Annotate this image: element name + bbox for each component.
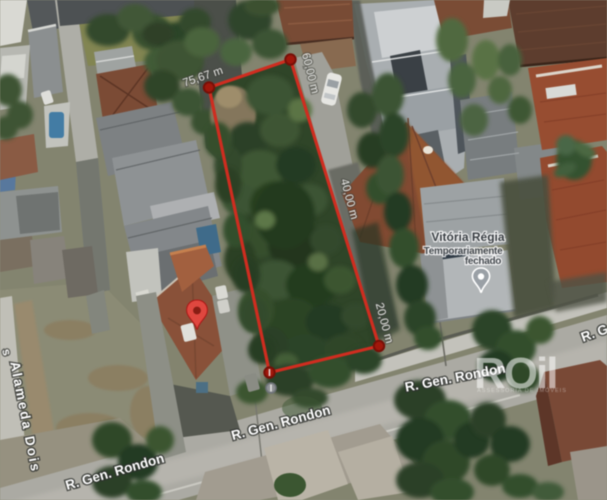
svg-text:fechado: fechado <box>465 256 501 267</box>
svg-text:Vitória Régia: Vitória Régia <box>431 230 504 244</box>
svg-text:ASSESSORIA DE IMÓVEIS: ASSESSORIA DE IMÓVEIS <box>477 387 567 394</box>
